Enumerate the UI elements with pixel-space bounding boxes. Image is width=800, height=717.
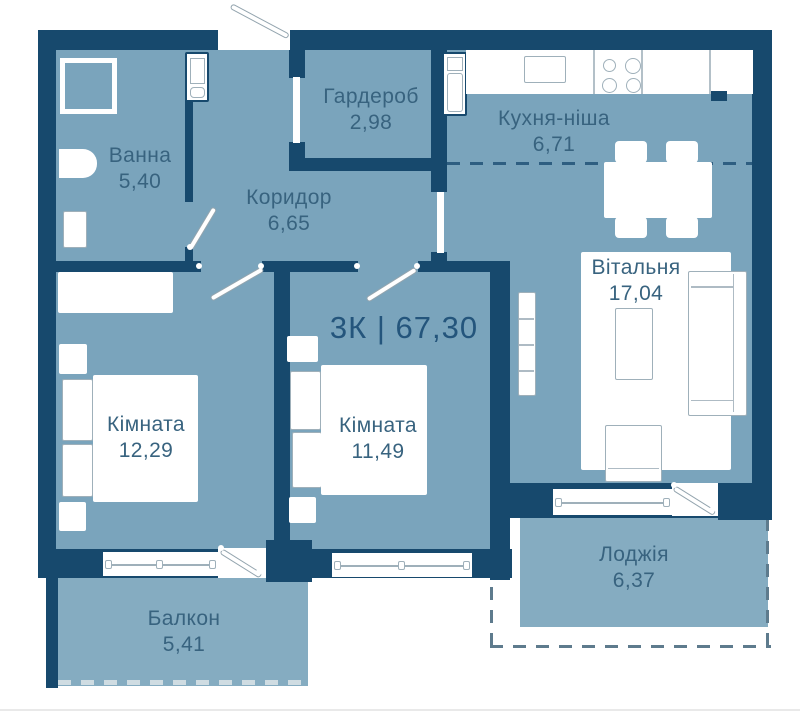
room-name: Кімната <box>107 412 185 438</box>
shelf-line <box>519 344 534 346</box>
bathroom-sink-icon <box>63 211 87 248</box>
balcony-dashed-edge <box>58 680 308 685</box>
room-name: Ванна <box>109 143 172 169</box>
room-label-balcony: Балкон 5,41 <box>148 606 221 658</box>
shelf-line <box>519 370 534 372</box>
wall-top <box>38 30 772 50</box>
chair-icon <box>666 141 698 163</box>
nightstand-icon <box>59 502 86 531</box>
room-area: 5,41 <box>148 632 221 658</box>
living-window <box>553 489 672 515</box>
sofa-icon <box>688 271 747 416</box>
hinge-dot <box>671 482 677 488</box>
room-name: Балкон <box>148 606 221 632</box>
room-area: 2,98 <box>323 110 419 136</box>
window-handle <box>463 561 470 570</box>
room-area: 17,04 <box>591 281 680 307</box>
counter-divider <box>593 50 595 94</box>
loggia-dashed-bottom <box>490 645 771 648</box>
room-name: Лоджія <box>599 542 669 568</box>
pillow-icon <box>292 432 322 488</box>
hinge-dot <box>709 507 715 513</box>
nightstand-icon <box>59 344 87 374</box>
wall-wardrobe-left-upper <box>289 50 305 78</box>
chair-icon <box>615 217 647 238</box>
stove-burner-icon <box>625 58 641 74</box>
wall-living-divider <box>490 270 510 580</box>
room-name: Коридор <box>246 185 332 211</box>
room-label-corridor: Коридор 6,65 <box>246 185 332 237</box>
coffee-table-icon <box>615 308 653 380</box>
washing-machine-icon <box>185 52 209 102</box>
chair-icon <box>666 217 698 238</box>
tv-stand-line <box>608 468 659 470</box>
hinge-dot <box>414 263 420 269</box>
room-label-bathroom: Ванна 5,40 <box>109 143 172 195</box>
counter-end-block <box>711 91 727 101</box>
window-handle <box>156 560 163 569</box>
kitchen-door-leaf-icon <box>437 192 444 253</box>
room-area: 6,37 <box>599 568 669 594</box>
window-frame <box>557 502 668 504</box>
kitchen-sink-icon <box>524 56 566 83</box>
wardrobe-door-leaf-icon <box>293 77 300 143</box>
wall-right <box>752 30 772 520</box>
window-handle <box>209 560 216 569</box>
bedroom2-window <box>332 553 472 577</box>
fridge-section <box>447 73 463 112</box>
counter-divider <box>709 50 711 94</box>
room-area: 6,65 <box>246 211 332 237</box>
dining-table-icon <box>604 162 712 218</box>
hinge-dot <box>258 263 264 269</box>
room-name: Гардероб <box>323 84 419 110</box>
room-label-living: Вітальня 17,04 <box>591 255 680 307</box>
toilet-icon <box>59 149 97 178</box>
shelf-line <box>519 318 534 320</box>
loggia-dashed-right <box>766 518 769 648</box>
room-label-wardrobe: Гардероб 2,98 <box>323 84 419 136</box>
stove-burner-icon <box>626 78 641 93</box>
room-label-bedroom1: Кімната 12,29 <box>107 412 185 464</box>
pillow-icon <box>290 371 321 430</box>
room-name: Кімната <box>339 413 417 439</box>
room-label-kitchen: Кухня-ніша 6,71 <box>498 106 610 158</box>
counter-divider <box>641 50 643 94</box>
wall-balcony-corner <box>266 540 312 582</box>
tv-stand-icon <box>605 425 662 482</box>
sofa-armrest-line <box>691 286 733 288</box>
wall-loggia-corner <box>718 487 772 520</box>
washer-drum <box>190 58 205 84</box>
room-label-loggia: Лоджія 6,37 <box>599 542 669 594</box>
closet-icon <box>287 336 318 362</box>
sofa-armrest-line <box>691 400 733 402</box>
room-area: 11,49 <box>339 439 417 465</box>
pillow-icon <box>62 444 93 497</box>
window-handle <box>663 498 670 507</box>
wall-left <box>38 30 56 568</box>
room-name: Кухня-ніша <box>498 106 610 132</box>
shelf-unit-icon <box>518 292 536 396</box>
wall-wardrobe-bottom <box>289 158 447 171</box>
window-handle <box>555 498 562 507</box>
wall-balcony-left <box>46 560 58 688</box>
bedroom1-window <box>103 552 218 576</box>
window-handle <box>105 560 112 569</box>
nightstand-icon <box>289 497 316 523</box>
room-name: Вітальня <box>591 255 680 281</box>
room-area: 5,40 <box>109 169 172 195</box>
hinge-dot <box>256 569 262 575</box>
plan-title: 3К | 67,30 <box>330 310 478 346</box>
hinge-dot <box>196 263 202 269</box>
stove-burner-icon <box>602 78 617 93</box>
hinge-dot <box>187 244 193 250</box>
freezer-section <box>447 57 463 71</box>
stove-burner-icon <box>603 59 616 72</box>
fridge-icon <box>442 52 467 116</box>
window-handle <box>398 561 405 570</box>
hinge-dot <box>354 263 360 269</box>
room-area: 6,71 <box>498 132 610 158</box>
pillow-icon <box>62 379 93 441</box>
floor-plan-canvas: Ванна 5,40 Гардероб 2,98 Кухня-ніша 6,71… <box>0 0 800 717</box>
sofa-backrest-line <box>733 274 735 412</box>
room-area: 12,29 <box>107 438 185 464</box>
hinge-dot <box>218 545 224 551</box>
shower-icon <box>60 58 117 114</box>
wardrobe-icon <box>58 272 173 313</box>
washer-door <box>190 87 205 98</box>
footer-divider <box>0 709 800 711</box>
wall-bathroom-bottom <box>38 261 201 272</box>
wall-bedrooms-divider <box>274 270 290 552</box>
wall-bathroom-right <box>185 100 193 202</box>
window-handle <box>334 561 341 570</box>
chair-icon <box>615 141 647 163</box>
room-label-bedroom2: Кімната 11,49 <box>339 413 417 465</box>
